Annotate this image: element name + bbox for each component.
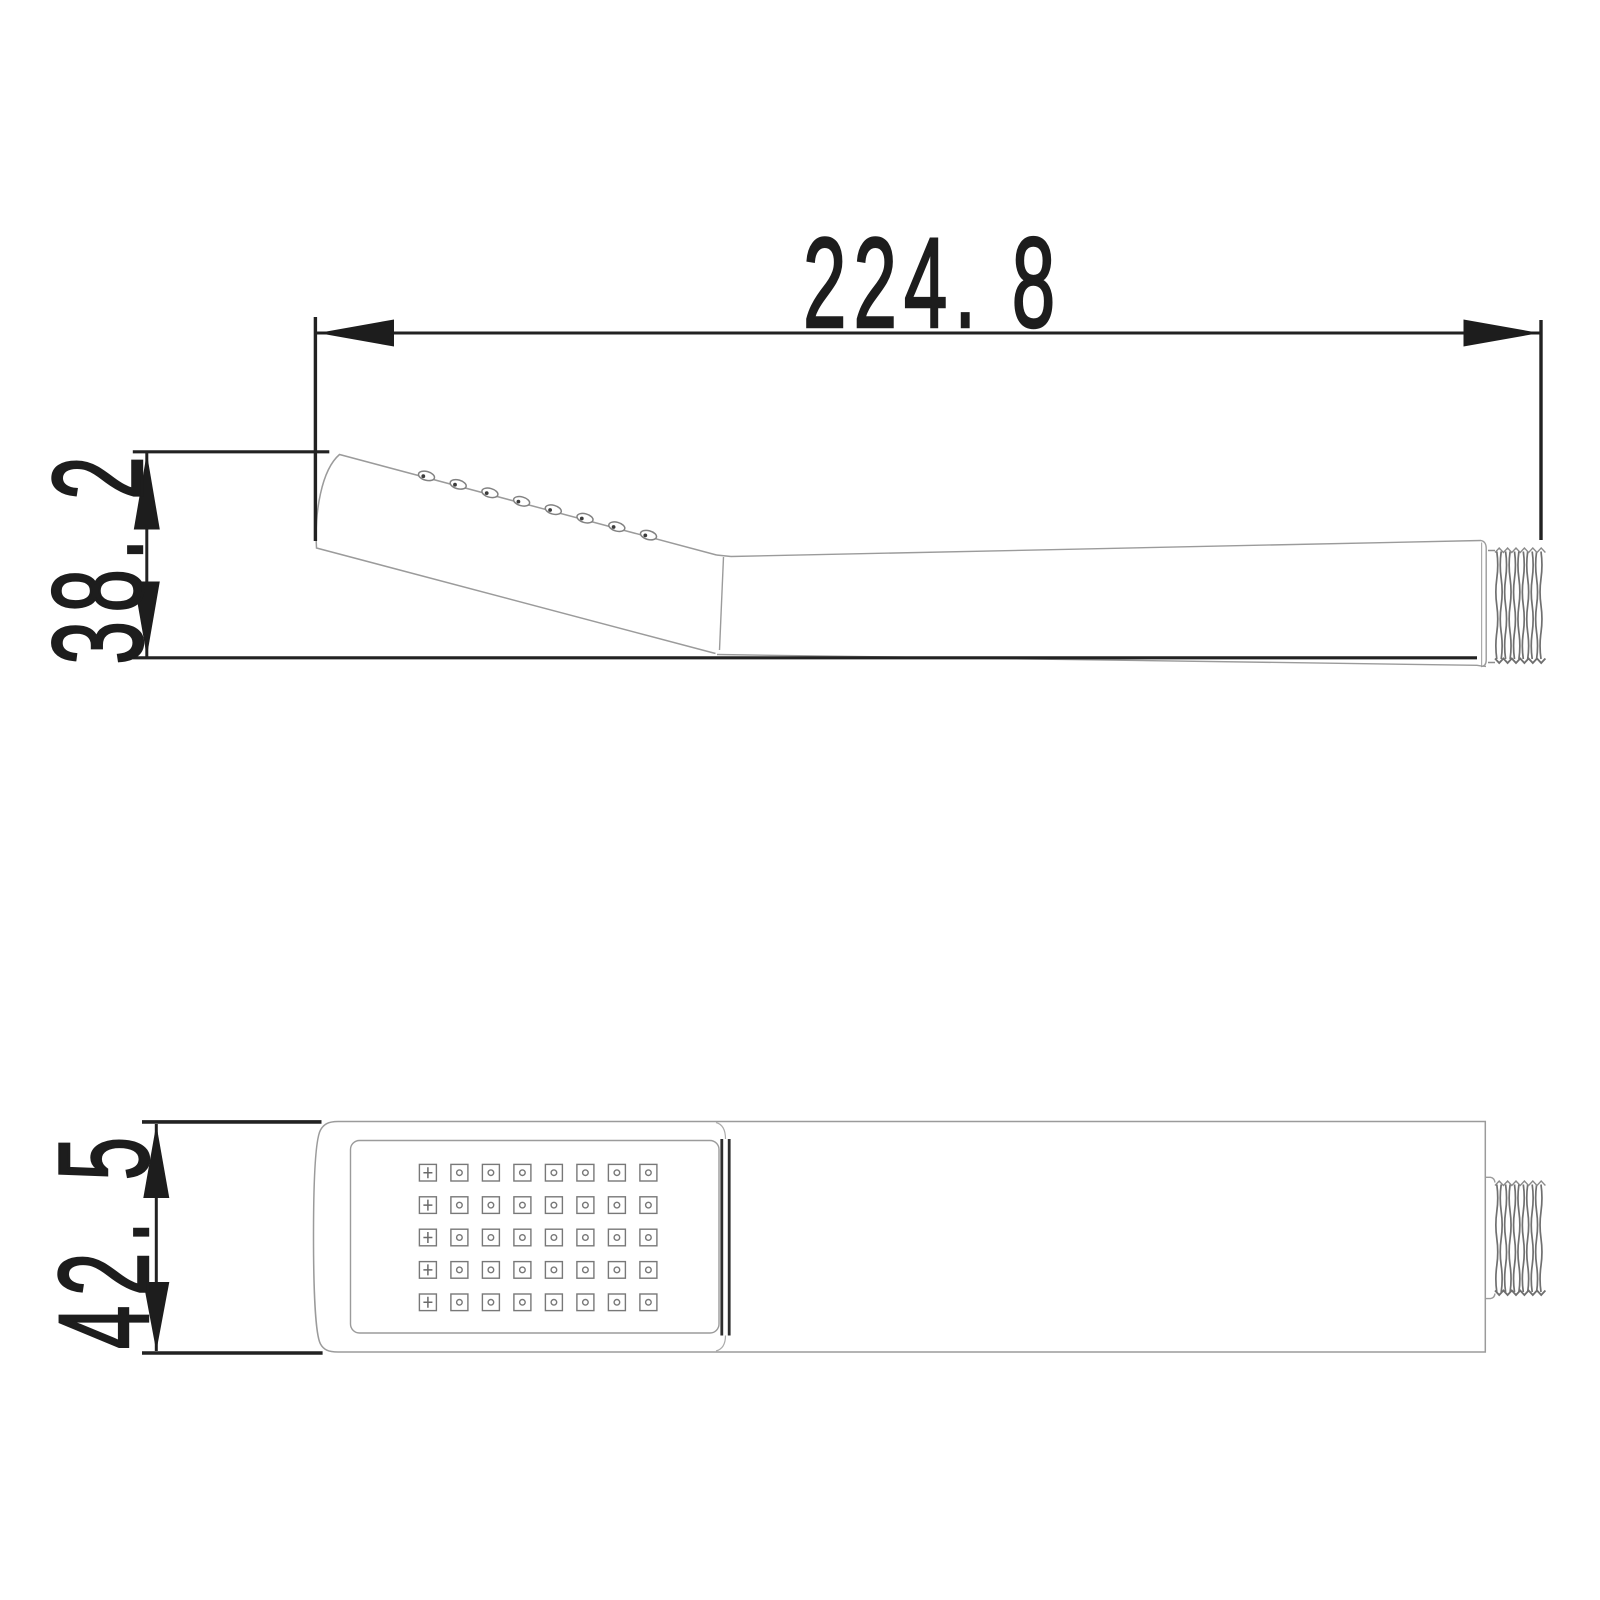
svg-text:224. 8: 224. 8: [803, 212, 1062, 354]
svg-text:42. 5: 42. 5: [33, 1127, 175, 1349]
svg-text:38. 2: 38. 2: [27, 448, 169, 665]
